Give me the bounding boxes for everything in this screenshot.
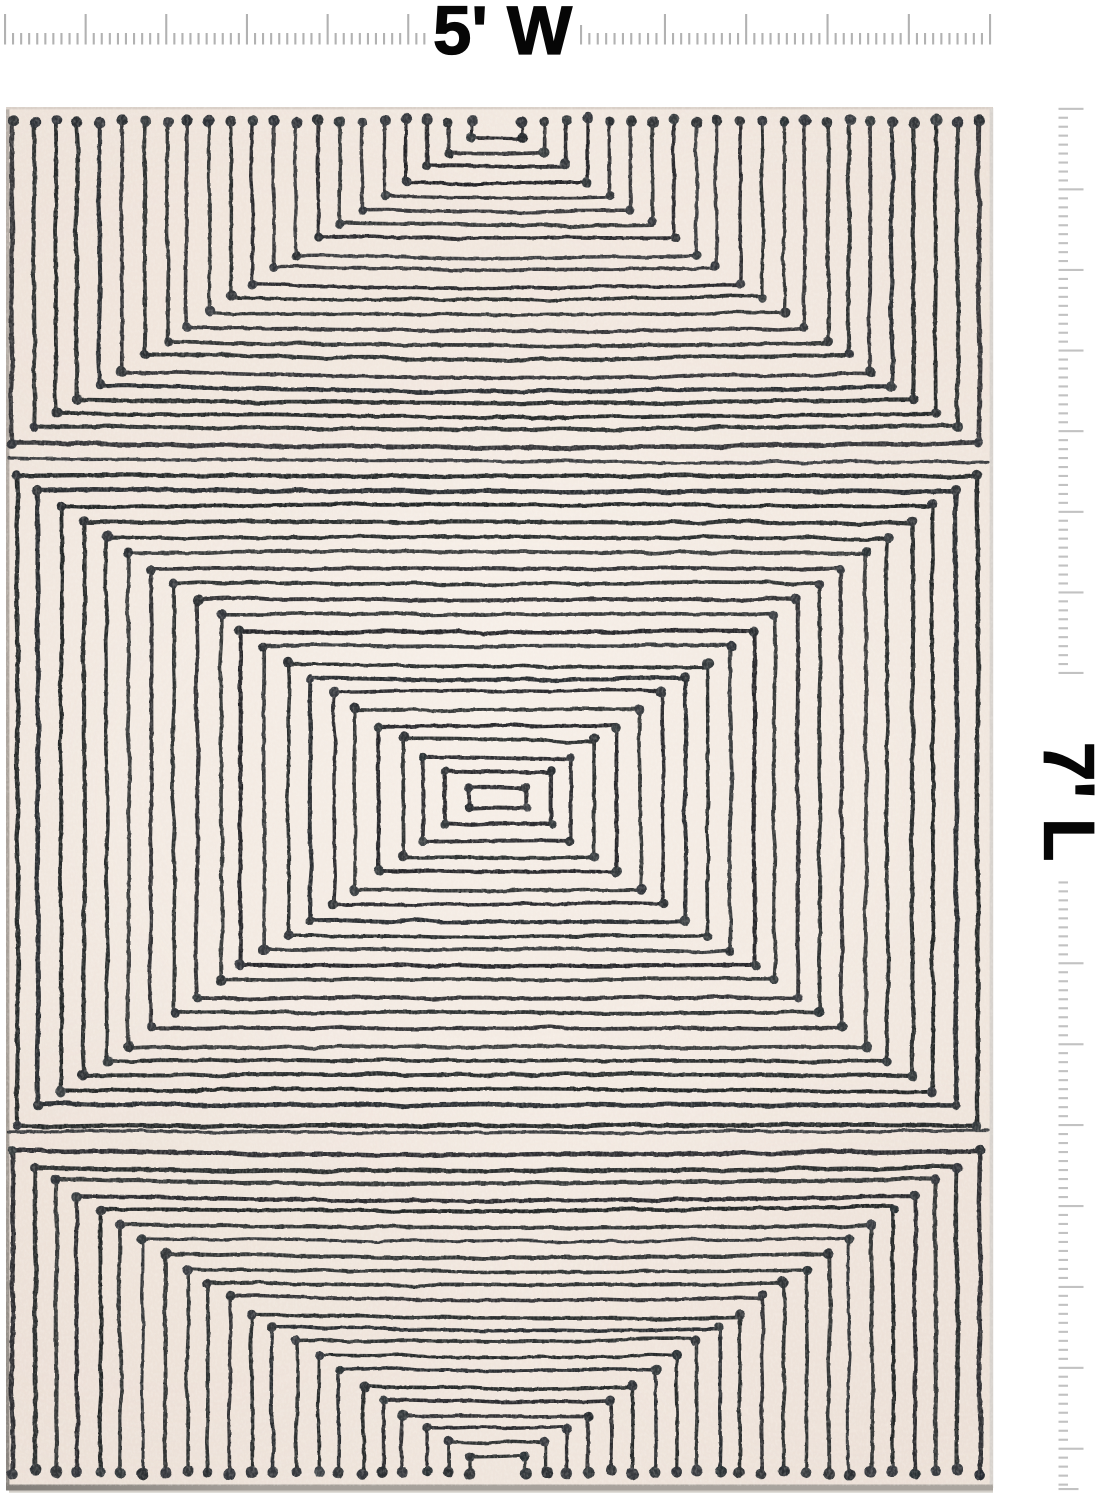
svg-text:5' W: 5' W [433, 0, 573, 69]
svg-text:7' L: 7' L [1029, 742, 1100, 861]
